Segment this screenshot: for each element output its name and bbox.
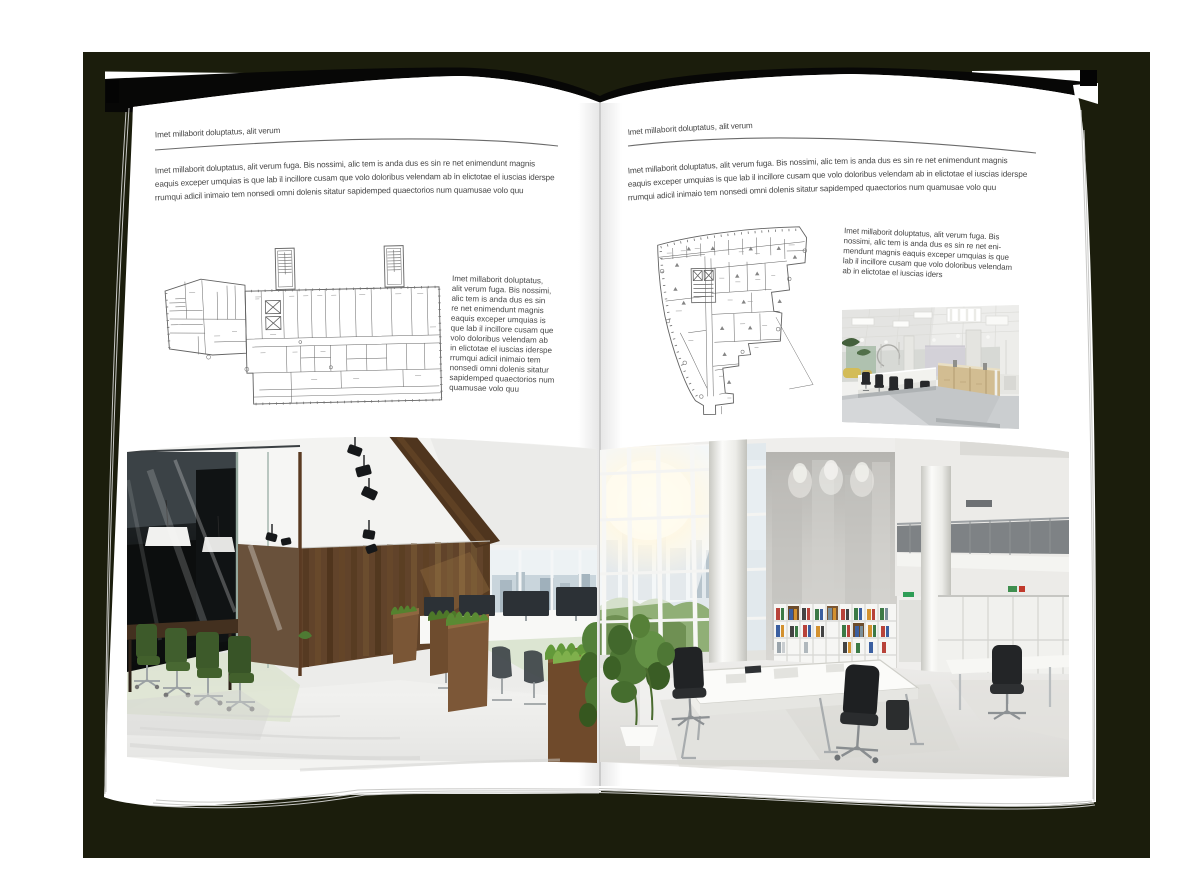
- svg-text:quamusae volo quu: quamusae volo quu: [449, 383, 519, 394]
